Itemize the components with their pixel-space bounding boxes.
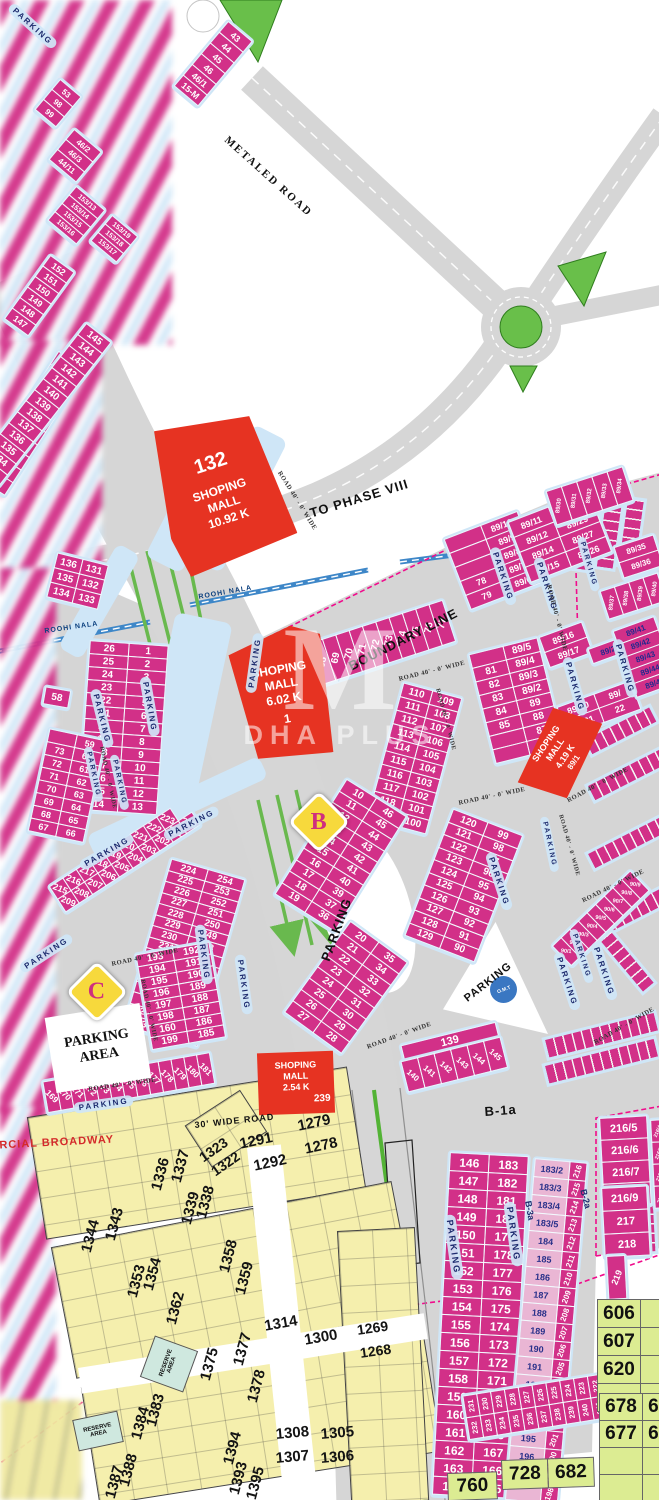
plot: 190 (519, 1339, 554, 1359)
plot-number: 90 (452, 942, 466, 956)
marker-c-letter: C (88, 979, 105, 1006)
plot-number: 89/37 (608, 595, 616, 611)
plot-number: 205 (554, 1361, 567, 1377)
plot: 185 (526, 1249, 561, 1269)
plot-number: 26 (103, 643, 115, 655)
plot-number: 89/40 (651, 581, 659, 597)
reserve-area-label: RESERVE AREA (75, 1421, 121, 1442)
plot-number: 89/36 (630, 557, 652, 572)
plot: 182 (488, 1173, 527, 1192)
plot-number: 217 (616, 1215, 635, 1228)
plot-number: 89/39 (636, 586, 644, 602)
plot-number: 184 (538, 1235, 554, 1246)
mall-size: 2.54 K (283, 1082, 310, 1094)
plot: 189 (520, 1321, 555, 1341)
plot-number: 225 (549, 1386, 560, 1400)
plot: 212 (563, 1234, 580, 1252)
plot-number: 211 (564, 1254, 577, 1269)
plot-number: 216/2 (655, 1168, 659, 1182)
plot-number: 73 (54, 745, 66, 757)
plot: 760 (448, 1472, 497, 1500)
plot-number: 678 (605, 1396, 637, 1418)
mall-plot-number: 1 (283, 711, 292, 727)
plot-number: 143 (455, 1055, 471, 1071)
plot: 173 (479, 1335, 518, 1354)
plot: 209 (558, 1288, 575, 1306)
plot (643, 1475, 659, 1500)
yellow-plot-number: 1308 (275, 1423, 310, 1443)
plot: 156 (441, 1333, 480, 1352)
plot-number: 62 (76, 776, 88, 788)
plot-number: 90/5 (595, 915, 606, 922)
plot-number: 212 (565, 1235, 578, 1251)
plot-number: 147 (458, 1173, 479, 1188)
plot-number: 90/6 (604, 906, 615, 913)
plot-number: 177 (492, 1265, 513, 1280)
plot-number: 216/7 (612, 1165, 640, 1178)
plot-number: 231 (466, 1399, 477, 1413)
plot: 682 (548, 1458, 594, 1488)
plot: 216/2 (653, 1164, 659, 1186)
plot-number: 24 (102, 669, 114, 681)
plot: 146 (450, 1153, 489, 1172)
plot: 176 (482, 1281, 521, 1300)
plot: 58 (44, 687, 70, 707)
plot-number: 88 (532, 710, 545, 723)
plot: 172 (479, 1353, 518, 1372)
plot: 154 (442, 1297, 481, 1316)
plot-number: 235 (511, 1414, 522, 1428)
plot-number: 227 (521, 1390, 532, 1404)
plot: 205 (552, 1360, 569, 1378)
plot-number: 142 (438, 1059, 454, 1075)
plot-number: 79 (480, 589, 493, 602)
plot-block: 760 (448, 1472, 497, 1500)
plot-number: 682 (555, 1461, 587, 1484)
plot-number: 1 (145, 646, 151, 657)
plot: 183/2 (534, 1159, 569, 1179)
plot: 148 (448, 1189, 487, 1208)
plot-number: 216/4 (653, 1124, 659, 1138)
plot-number: 206 (556, 1343, 569, 1359)
plot-number: 8 (139, 736, 145, 747)
plot-block: 728682 (502, 1458, 594, 1490)
plot-number: 155 (451, 1317, 472, 1332)
plot-number: 239 (566, 1405, 577, 1419)
plot-number: 89/31 (570, 493, 578, 509)
plot-number: 7 (140, 723, 146, 734)
shopping-mall-239: SHOPING MALL 2.54 K 239 (257, 1051, 335, 1116)
plot-number: 82 (488, 678, 501, 691)
plot-number: 182 (497, 1175, 518, 1190)
plot-number: 66 (65, 827, 77, 839)
plot: 187 (523, 1285, 558, 1305)
plot-number: 131 (84, 562, 103, 577)
omt-label: O.M.T (496, 984, 511, 994)
plot-number: 728 (509, 1463, 541, 1486)
plot: 174 (480, 1317, 519, 1336)
plot-number: 89/38 (622, 591, 630, 607)
plot-number: 89/34 (616, 478, 624, 494)
plot-number: 90/8 (621, 890, 632, 897)
plot: 206 (553, 1342, 570, 1360)
plot-block: 216/9217218 (599, 1183, 653, 1261)
plot: 157 (440, 1351, 479, 1370)
plot-number: 84 (495, 705, 508, 718)
plot-number: 144 (471, 1051, 487, 1067)
plot-number: 81 (484, 664, 497, 677)
plot-number: 606 (603, 1303, 635, 1325)
plot: 216/4 (651, 1120, 659, 1142)
plot-number: 89 (528, 697, 541, 710)
plot-number: 99 (43, 107, 56, 120)
yellow-plot-number: 1305 (320, 1423, 355, 1443)
plot-number: 620 (603, 1359, 635, 1381)
plot: 175 (481, 1299, 520, 1318)
plot-number: 63 (73, 789, 85, 801)
plot-number: 65 (67, 814, 79, 826)
mall-plot-number: 132 (191, 447, 230, 481)
plot-number: 148 (457, 1191, 478, 1206)
plot-number: 233 (483, 1419, 494, 1433)
plot-number: 199 (161, 1034, 179, 1048)
plot-number: 167 (483, 1445, 504, 1460)
plot-number: 234 (497, 1416, 508, 1430)
plot: 607 (598, 1328, 640, 1355)
plot (641, 1356, 659, 1383)
plot-number: 89/ (607, 688, 622, 702)
plot: 216/7 (602, 1160, 649, 1183)
plot: 207 (555, 1324, 572, 1342)
plot-number: 171 (487, 1373, 508, 1388)
plot-number: 232 (470, 1421, 481, 1435)
plot: 676 (643, 1421, 659, 1447)
plot-number: 201 (548, 1433, 561, 1449)
plot-number: 78 (475, 575, 488, 588)
plot-number: 183/3 (539, 1181, 562, 1193)
parking-area-label: PARKING AREA (48, 1024, 148, 1072)
plot-number: 69 (43, 796, 55, 808)
plot-number: 219 (609, 1269, 624, 1287)
plot-number: 67 (37, 821, 49, 833)
plot-block: 219 (604, 1253, 630, 1303)
plot-number: 85 (498, 719, 511, 732)
plot: 216/5 (600, 1116, 647, 1139)
plot: 677 (600, 1421, 642, 1447)
plot-number: 176 (491, 1283, 512, 1298)
plot: 678 (600, 1394, 642, 1420)
plot: 183/4 (531, 1195, 566, 1215)
plot-number: 172 (488, 1355, 509, 1370)
plot-number: 223 (577, 1381, 588, 1395)
plot-number: 136 (59, 556, 78, 571)
plot-number: 210 (562, 1271, 575, 1287)
mall-name: SHOPING MALL (268, 1059, 323, 1083)
plot: 217 (603, 1210, 648, 1234)
plot-number: 183/5 (536, 1217, 559, 1229)
plot-number: 190 (528, 1343, 544, 1354)
plot-number: 188 (531, 1307, 547, 1318)
plot-number: 89/33 (601, 483, 609, 499)
plot (641, 1328, 659, 1355)
plot-number: 174 (489, 1319, 510, 1334)
plot-number: 12 (132, 788, 144, 800)
plot-block: 58 (40, 684, 74, 712)
plot: 183/3 (533, 1177, 568, 1197)
plot-number: 216/6 (611, 1143, 639, 1156)
plot-number: 2 (144, 659, 150, 670)
plot-number: 149 (456, 1209, 477, 1224)
plot: 186 (525, 1267, 560, 1287)
plot-number: 145 (488, 1046, 504, 1062)
plot-number: 183/2 (540, 1163, 563, 1175)
plot-number: 187 (533, 1289, 549, 1300)
plot-map: RESERVE AREA RESERVE AREA 132 SHOPING MA… (0, 0, 659, 1500)
plot-number: 183 (498, 1157, 519, 1172)
plot-number: 183/4 (537, 1199, 560, 1211)
plot-number: 240 (580, 1403, 591, 1417)
plot-number: 153 (452, 1281, 473, 1296)
yellow-plot-number: 1307 (275, 1447, 310, 1467)
plot-number: 216 (571, 1164, 584, 1180)
plot-number: 22 (613, 702, 626, 715)
plot: 162 (435, 1441, 474, 1460)
plot-number: 133 (77, 591, 96, 606)
plot-number: 229 (494, 1395, 505, 1409)
plot-number: 72 (51, 758, 63, 770)
plot-number: 25 (102, 656, 114, 668)
plot-number: 230 (480, 1397, 491, 1411)
plot-number: 224 (563, 1384, 574, 1398)
plot-number: 185 (536, 1253, 552, 1264)
plot: 184 (528, 1231, 563, 1251)
plot-number: 98 (52, 97, 65, 110)
plot-number: 9 (138, 749, 144, 760)
plot: 216/9 (602, 1187, 647, 1211)
plot-number: 154 (451, 1299, 472, 1314)
plot-number: 146 (459, 1155, 480, 1170)
plot-number: 237 (539, 1410, 550, 1424)
plot-number: 218 (618, 1238, 637, 1251)
plot: 213 (564, 1216, 581, 1234)
plot-number: 58 (50, 691, 63, 704)
plot-number: 157 (449, 1353, 470, 1368)
plot-number: 191 (527, 1361, 543, 1372)
plot-number: 10 (134, 762, 146, 774)
plot-number: 158 (448, 1371, 469, 1386)
plot-number: 185 (197, 1027, 215, 1041)
plot: 158 (439, 1369, 478, 1388)
plot-number: 226 (535, 1388, 546, 1402)
yellow-plot-number: 1306 (320, 1447, 355, 1467)
plot (600, 1448, 642, 1474)
plot-number: 214 (568, 1200, 581, 1216)
marker-b-letter: B (311, 808, 327, 835)
plot-number: 83 (491, 691, 504, 704)
plot: 208 (557, 1306, 574, 1324)
plot: 147 (449, 1171, 488, 1190)
plot-number: 23 (101, 682, 113, 694)
plot-number: 89/32 (586, 488, 594, 504)
plot-number: 135 (56, 571, 75, 586)
plot (643, 1448, 659, 1474)
plot: 191 (517, 1356, 552, 1376)
plot-number: 760 (456, 1475, 488, 1498)
plot-number: 89/30 (555, 498, 563, 514)
plot: 210 (560, 1270, 577, 1288)
mall-plot-number: 239 (314, 1092, 331, 1105)
plot-number: 186 (535, 1271, 551, 1282)
plot-number: 679 (648, 1396, 659, 1418)
map-label: B-1a (484, 1102, 517, 1119)
plot-number: 132 (81, 577, 100, 592)
plot-number: 236 (525, 1412, 536, 1426)
plot-number: 69 (329, 651, 342, 664)
reserve-area-label: RESERVE AREA (156, 1342, 182, 1386)
plot: 183 (489, 1155, 528, 1174)
plot: 216/6 (601, 1138, 648, 1161)
plot-number: 11 (133, 775, 144, 787)
plot-number: 216/5 (610, 1121, 638, 1134)
plot-number: 213 (567, 1217, 580, 1233)
plot-block: 678679677676 (600, 1394, 659, 1500)
plot-number: 156 (450, 1335, 471, 1350)
plot (641, 1300, 659, 1327)
plot: 679 (643, 1394, 659, 1420)
plot-number: 676 (648, 1423, 659, 1445)
plot-number: 189 (530, 1325, 546, 1336)
plot: 201 (546, 1431, 563, 1449)
blurred-plots (0, 1400, 82, 1500)
plot-number: 140 (405, 1067, 421, 1083)
plot-number: 53 (60, 87, 73, 100)
plot-number: 175 (490, 1301, 511, 1316)
plot-number: 64 (70, 802, 82, 814)
plot-number: 173 (489, 1337, 510, 1352)
plot: 606 (598, 1300, 640, 1327)
plot-number: 216/3 (654, 1146, 659, 1160)
plot-number: 208 (559, 1307, 572, 1323)
plot: 155 (441, 1315, 480, 1334)
plot-number: 134 (52, 585, 71, 600)
plot-number: 181 (197, 1061, 214, 1078)
plot: 219 (607, 1256, 626, 1299)
plot-number: 607 (603, 1331, 635, 1353)
plot-number: 90/7 (612, 898, 623, 905)
plot-number: 238 (552, 1408, 563, 1422)
plot-number: 90/9 (630, 881, 641, 888)
plot-number: 677 (605, 1423, 637, 1445)
plot-number: 68 (40, 809, 52, 821)
plot (600, 1475, 642, 1500)
plot: 216/3 (652, 1142, 659, 1164)
plot-number: 162 (444, 1443, 465, 1458)
plot: 728 (502, 1459, 548, 1489)
plot-number: 209 (560, 1289, 573, 1305)
plot-number: 70 (46, 783, 58, 795)
plot: 188 (522, 1303, 557, 1323)
plot: 216/1 (655, 1186, 659, 1208)
plot-number: 141 (422, 1063, 438, 1079)
plot: 211 (561, 1252, 578, 1270)
plot-number: 216/9 (611, 1192, 639, 1205)
plot: 216 (569, 1162, 586, 1180)
plot-number: 13 (131, 801, 143, 813)
plot-number: 161 (445, 1425, 466, 1440)
plot-number: 90/4 (586, 923, 597, 930)
plot-number: 71 (48, 770, 60, 782)
plot-number: 228 (508, 1392, 519, 1406)
plot: 153 (443, 1279, 482, 1298)
plot-number: 207 (557, 1325, 570, 1341)
plot: 620 (598, 1356, 640, 1383)
